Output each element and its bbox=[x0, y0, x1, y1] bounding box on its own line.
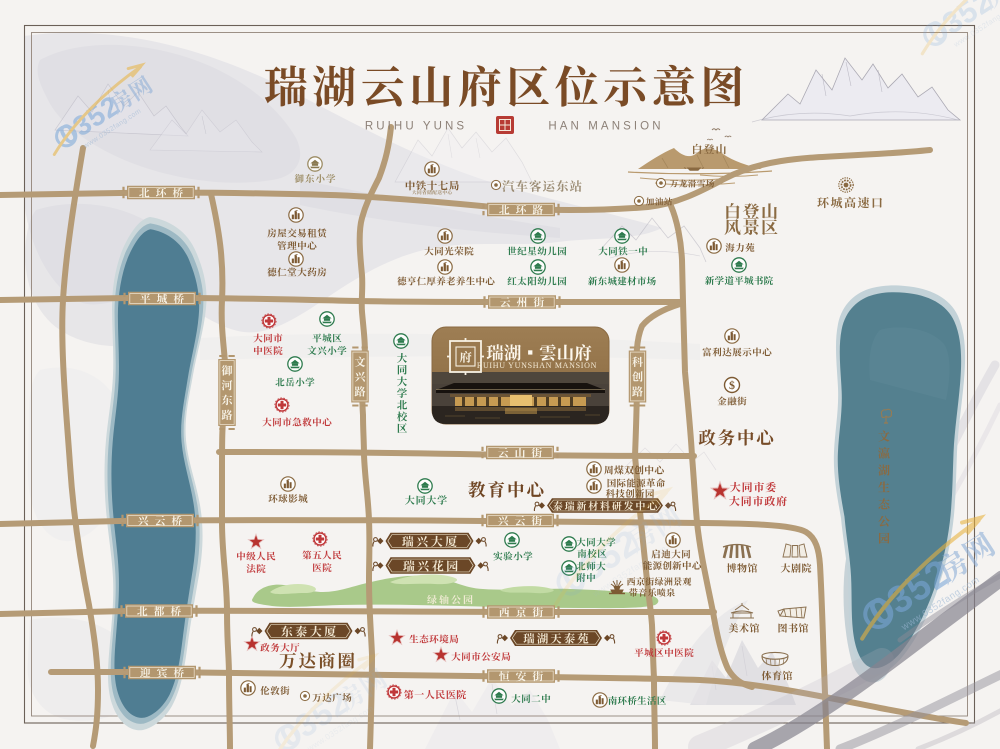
svg-text:RUIHU YUNSHAN MANSION: RUIHU YUNSHAN MANSION bbox=[477, 361, 597, 370]
svg-text:HAN MANSION: HAN MANSION bbox=[548, 121, 663, 133]
svg-text:RUIHU YUNS: RUIHU YUNS bbox=[365, 121, 467, 133]
